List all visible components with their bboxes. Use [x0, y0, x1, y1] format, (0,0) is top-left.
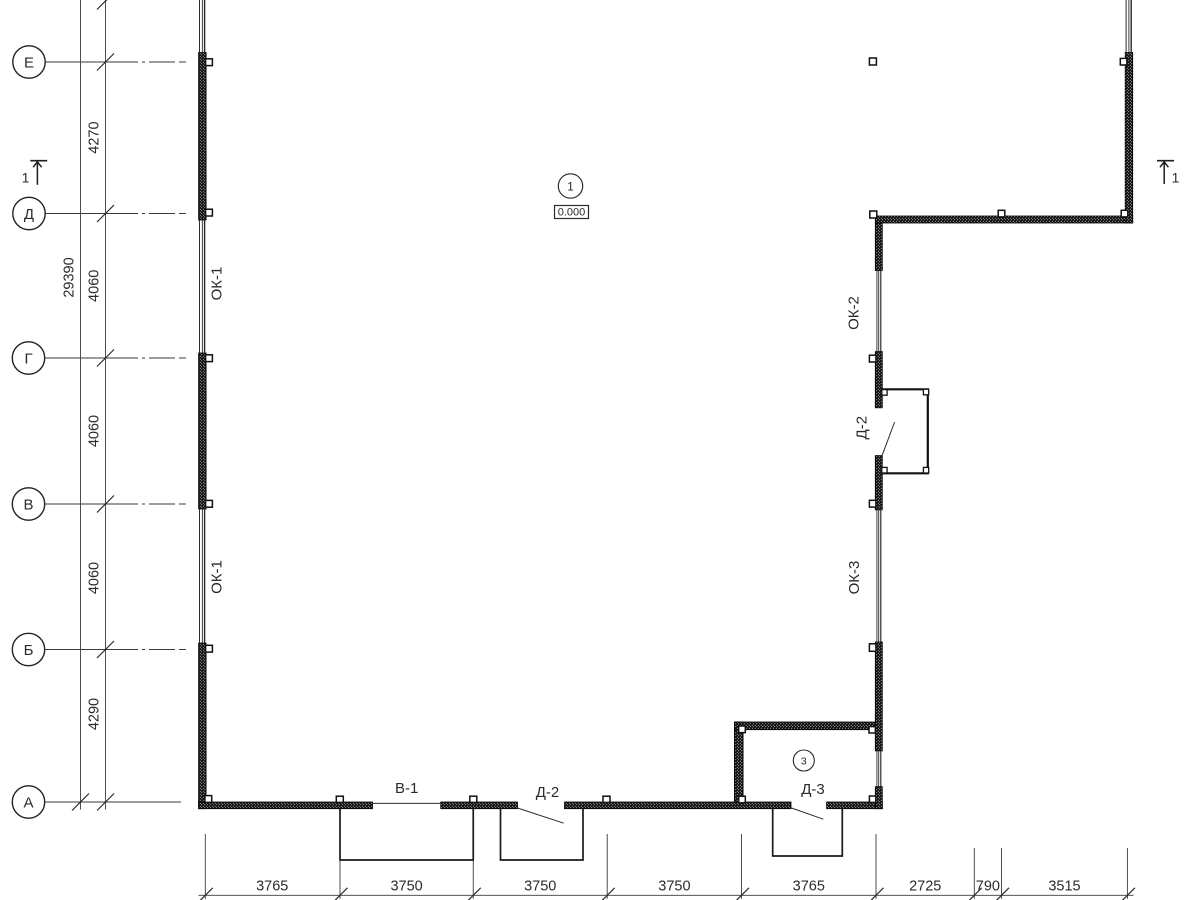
svg-text:В-1: В-1: [395, 780, 418, 797]
svg-text:3515: 3515: [1048, 879, 1080, 895]
svg-text:Б: Б: [24, 642, 34, 659]
svg-text:А: А: [23, 794, 33, 811]
svg-text:2725: 2725: [909, 879, 941, 895]
svg-text:1: 1: [1172, 170, 1180, 186]
svg-text:3750: 3750: [524, 879, 556, 895]
svg-text:0.000: 0.000: [558, 207, 586, 219]
svg-text:3765: 3765: [793, 879, 825, 895]
svg-text:4060: 4060: [87, 270, 103, 302]
svg-text:ОК-3: ОК-3: [846, 561, 863, 595]
svg-text:3765: 3765: [256, 879, 288, 895]
svg-text:4270: 4270: [87, 121, 103, 153]
svg-text:В: В: [23, 496, 33, 513]
svg-text:Д: Д: [24, 206, 34, 223]
svg-text:790: 790: [976, 879, 1000, 895]
svg-text:Д-2: Д-2: [854, 416, 871, 440]
svg-text:3: 3: [801, 756, 807, 768]
svg-text:1: 1: [22, 170, 30, 186]
svg-text:4290: 4290: [87, 698, 103, 730]
svg-text:ОК-2: ОК-2: [846, 296, 863, 330]
svg-text:Д-2: Д-2: [536, 784, 560, 801]
svg-text:4060: 4060: [87, 562, 103, 594]
svg-text:29390: 29390: [62, 257, 78, 297]
svg-text:4060: 4060: [87, 415, 103, 447]
svg-text:3750: 3750: [390, 879, 422, 895]
svg-text:3750: 3750: [658, 879, 690, 895]
svg-text:Г: Г: [24, 350, 32, 367]
svg-text:Е: Е: [24, 54, 34, 71]
svg-text:ОК-1: ОК-1: [208, 267, 225, 301]
svg-text:ОК-1: ОК-1: [209, 560, 226, 594]
svg-text:1: 1: [567, 180, 574, 194]
svg-text:Д-3: Д-3: [801, 781, 825, 798]
